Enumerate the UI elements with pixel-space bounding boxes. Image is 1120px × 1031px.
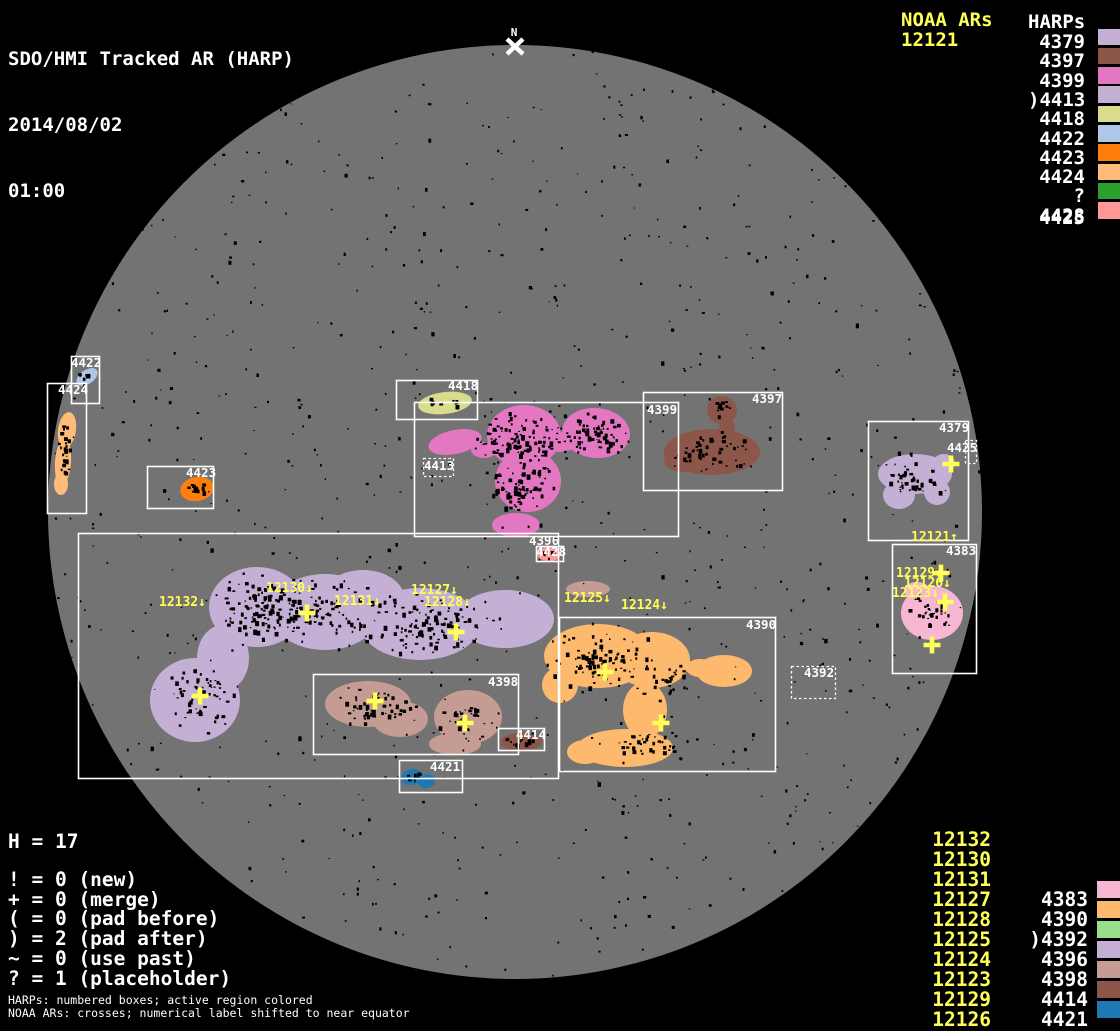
legend-harp-number: )4392 [1000, 930, 1088, 950]
legend-harp-swatch [1098, 144, 1120, 161]
legend-bottom-right: 1213212130121311212712128121251212412123… [905, 828, 1120, 1024]
harp-box-label: 4390 [746, 617, 776, 632]
noaa-label: 12130↓ [266, 581, 313, 596]
flag-count-line: ? = 1 (placeholder) [8, 969, 410, 989]
region-blob [417, 774, 435, 788]
legend-noaa-number: 12123 [905, 970, 991, 990]
legend-harp-number: 4414 [1000, 990, 1088, 1010]
legend-harp-swatch [1097, 901, 1120, 918]
region-blob [924, 479, 950, 505]
harp-plot: 4422442444234418441343994397437944254383… [0, 0, 1120, 1024]
region-blob [567, 740, 603, 764]
legend-footnote: HARPs: numbered boxes; active region col… [8, 994, 410, 1006]
legend-harp-number: 4390 [1000, 910, 1088, 930]
harp-box-label: 4425 [947, 440, 977, 455]
legend-harp-item: 4428 [1028, 205, 1085, 227]
noaa-label: 12128↓ [424, 595, 471, 610]
legend-footnotes: HARPs: numbered boxes; active region col… [8, 994, 410, 1019]
harp-box-label: 4422 [71, 355, 101, 370]
region-blob [495, 450, 561, 512]
harp-box-label: 4397 [752, 391, 782, 406]
title-block: SDO/HMI Tracked AR (HARP) 2014/08/02 01:… [8, 4, 294, 246]
region-blob [429, 733, 481, 755]
harp-box-label: 4379 [939, 420, 969, 435]
region-blob [197, 625, 249, 691]
harp-box-label: 4421 [430, 759, 460, 774]
harp-box-label: 4414 [516, 727, 546, 742]
region-blob [686, 659, 714, 677]
flag-counts: ! = 0 (new)+ = 0 (merge)( = 0 (pad befor… [8, 870, 410, 988]
legend-harp-swatch [1098, 164, 1120, 181]
flag-count-line: ) = 2 (pad after) [8, 929, 410, 949]
legend-harp-swatch [1098, 202, 1120, 219]
noaa-label: 12125↓ [564, 591, 611, 606]
legend-noaa-number: 12128 [905, 910, 991, 930]
region-blob [372, 701, 428, 737]
legend-noaa-number: 12132 [905, 830, 991, 850]
legend-harp-swatch [1098, 67, 1120, 84]
noaa-number-column: 1213212130121311212712128121251212412123… [905, 830, 991, 1030]
flag-count-line: ! = 0 (new) [8, 870, 410, 890]
region-blob [54, 473, 68, 495]
harp-box-label: 4398 [488, 674, 518, 689]
legend-harp-swatch [1098, 125, 1120, 142]
harp-box-label: 4424 [58, 382, 88, 397]
legend-harp-swatch [1097, 941, 1120, 958]
region-blob [883, 481, 915, 509]
legend-noaa-number: 12126 [905, 1010, 991, 1030]
legend-noaa-number: 12124 [905, 950, 991, 970]
harp-box-label: 4423 [186, 465, 216, 480]
legend-harp-number: 4421 [1000, 1010, 1088, 1030]
legend-noaa-number: 12129 [905, 990, 991, 1010]
harp-box-label: 4428 [536, 544, 566, 559]
harp-box-label: 4383 [946, 543, 976, 558]
legend-harp-swatch [1098, 29, 1120, 46]
noaa-label: 12124↓ [621, 598, 668, 613]
harp-box-label: 4392 [804, 665, 834, 680]
legend-harp-swatch [1098, 86, 1120, 103]
legend-harps: HARPs 437943974399)44134418442244234424?… [1028, 11, 1120, 226]
legend-harp-swatch [1098, 106, 1120, 123]
harps-header: HARPs [1028, 11, 1085, 33]
legend-harp-swatch [1097, 921, 1120, 938]
legend-noaa-number: 12131 [905, 870, 991, 890]
noaa-label: 12131↓ [334, 594, 381, 609]
noaa-label: 12123↓ [892, 586, 939, 601]
legend-harp-swatch [1097, 961, 1120, 978]
harp-number-column: 43834390)43924396439844144421 [1000, 890, 1088, 1030]
legend-harp-number: 4383 [1000, 890, 1088, 910]
legend-harp-swatch [1097, 981, 1120, 998]
noaa-label: 12121↑ [911, 530, 958, 545]
legend-harp-swatch [1098, 183, 1120, 200]
legend-noaa-number: 12127 [905, 890, 991, 910]
harp-box-label: 4418 [448, 378, 478, 393]
legend-harp-number: 4398 [1000, 970, 1088, 990]
noaa-label: 12132↓ [159, 595, 206, 610]
legend-noaa-ars: NOAA ARs 12121 [901, 11, 993, 50]
harp-count: H = 17 [8, 830, 410, 853]
noaa-ar-number: 12121 [901, 31, 993, 51]
legend-noaa-number: 12130 [905, 850, 991, 870]
legend-harp-swatch [1097, 881, 1120, 898]
noaa-ars-header: NOAA ARs [901, 11, 993, 31]
harp-box-label: 4413 [424, 458, 454, 473]
legend-footnote: NOAA ARs: crosses; numerical label shift… [8, 1007, 410, 1019]
legend-harp-swatch [1098, 48, 1120, 65]
plot-date: 2014/08/02 [8, 114, 294, 136]
legend-harp-number: 4396 [1000, 950, 1088, 970]
legend-noaa-number: 12125 [905, 930, 991, 950]
north-label: N [511, 26, 518, 39]
legend-harp-swatch [1097, 1001, 1120, 1018]
legend-counters: H = 17 ! = 0 (new)+ = 0 (merge)( = 0 (pa… [8, 830, 410, 1019]
page-title: SDO/HMI Tracked AR (HARP) [8, 48, 294, 70]
plot-time: 01:00 [8, 180, 294, 202]
flag-count-line: ~ = 0 (use past) [8, 949, 410, 969]
harp-box-label: 4399 [647, 402, 677, 417]
